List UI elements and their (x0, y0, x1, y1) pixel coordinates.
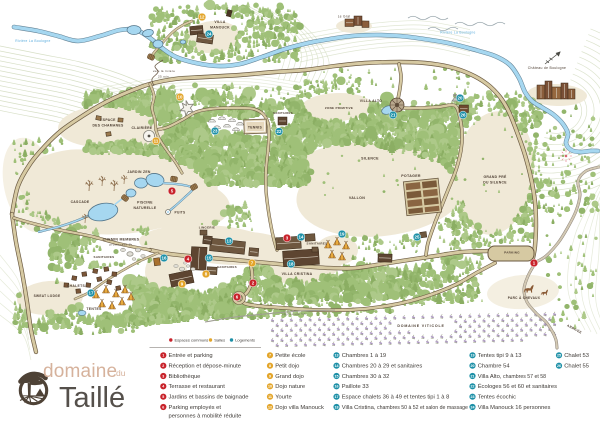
svg-text:DU SILENCE: DU SILENCE (483, 181, 507, 185)
svg-text:PISCINE: PISCINE (137, 201, 153, 205)
svg-text:2: 2 (162, 364, 164, 368)
svg-text:Chambre 54: Chambre 54 (478, 364, 511, 370)
svg-text:Tentes écochic: Tentes écochic (478, 395, 516, 401)
svg-text:Parking employés et: Parking employés et (169, 405, 222, 411)
svg-text:domaine: domaine (43, 361, 117, 382)
svg-text:ZONE PRIMITIVE: ZONE PRIMITIVE (325, 106, 353, 110)
svg-text:3: 3 (162, 374, 164, 378)
svg-text:PARC À CHEVAUX: PARC À CHEVAUX (508, 295, 541, 300)
svg-text:Le Gral: Le Gral (338, 15, 351, 19)
svg-text:9: 9 (269, 374, 271, 378)
svg-text:16: 16 (335, 385, 339, 389)
svg-text:VILLA CRISTINA: VILLA CRISTINA (282, 272, 313, 276)
svg-text:MANOUCK: MANOUCK (210, 26, 230, 30)
svg-text:10: 10 (268, 385, 272, 389)
svg-text:Petit dojo: Petit dojo (275, 364, 299, 370)
svg-text:17: 17 (335, 395, 339, 399)
svg-text:Réception et dépose-minute: Réception et dépose-minute (169, 364, 242, 370)
svg-text:21: 21 (391, 113, 396, 118)
svg-text:25: 25 (557, 354, 561, 358)
svg-text:26: 26 (557, 364, 561, 368)
svg-text:12: 12 (268, 405, 272, 409)
svg-text:VILLA: VILLA (214, 20, 226, 24)
svg-text:16: 16 (162, 256, 167, 261)
svg-text:22: 22 (471, 385, 475, 389)
svg-text:25 min.: 25 min. (158, 75, 170, 79)
svg-text:Grand dojo: Grand dojo (275, 374, 304, 380)
svg-text:GRAND PRÉ: GRAND PRÉ (483, 174, 506, 179)
svg-text:23: 23 (213, 129, 218, 134)
svg-text:Chalet 55: Chalet 55 (564, 364, 589, 370)
svg-text:11: 11 (268, 395, 272, 399)
svg-text:VALLON: VALLON (349, 196, 365, 200)
svg-text:Chambres 30 à 32: Chambres 30 à 32 (342, 374, 390, 380)
svg-text:JARDIN ZEN: JARDIN ZEN (127, 170, 151, 174)
svg-text:Villa Alto, chambres 57 et 58: Villa Alto, chambres 57 et 58 (478, 374, 546, 380)
svg-text:POTAGER: POTAGER (401, 174, 421, 178)
svg-text:13: 13 (335, 354, 339, 358)
svg-text:6: 6 (162, 405, 164, 409)
svg-text:Villa Manouck 16 personnes: Villa Manouck 16 personnes (478, 405, 551, 411)
svg-text:Dojo nature: Dojo nature (275, 384, 305, 390)
svg-text:Salles: Salles (214, 338, 225, 343)
svg-text:18: 18 (289, 262, 294, 267)
svg-text:personnes à mobilité réduite: personnes à mobilité réduite (169, 413, 242, 419)
svg-text:SANITAIRES: SANITAIRES (217, 265, 237, 269)
svg-text:Bibliothèque: Bibliothèque (169, 374, 201, 380)
svg-text:Espace chalets 36 à 49 et tent: Espace chalets 36 à 49 et tentes tipi 1 … (342, 395, 450, 401)
svg-text:19: 19 (471, 354, 475, 358)
svg-text:CLAIRIÈRE: CLAIRIÈRE (132, 125, 153, 130)
svg-text:Taillé: Taillé (59, 382, 125, 414)
svg-text:Espaces communs: Espaces communs (175, 338, 209, 343)
svg-text:Château de Boulogne: Château de Boulogne (528, 66, 567, 70)
svg-text:13: 13 (227, 239, 232, 244)
svg-text:Petite école: Petite école (275, 353, 305, 359)
svg-text:15: 15 (207, 256, 212, 261)
svg-text:Jardins et bassins de baignade: Jardins et bassins de baignade (169, 395, 249, 401)
svg-text:PARKING: PARKING (504, 251, 520, 255)
svg-text:25: 25 (415, 235, 420, 240)
svg-text:vers la rivière: vers la rivière (153, 69, 175, 73)
svg-text:Écologes 56 et 60 et sanitaire: Écologes 56 et 60 et sanitaires (478, 383, 557, 390)
svg-text:18: 18 (335, 405, 339, 409)
svg-text:Chambres 1 à 19: Chambres 1 à 19 (342, 353, 386, 359)
svg-text:12: 12 (200, 15, 205, 20)
svg-text:10: 10 (178, 95, 183, 100)
svg-text:21: 21 (471, 374, 475, 378)
svg-text:SANITAIRES: SANITAIRES (94, 255, 115, 259)
svg-text:CASCADE: CASCADE (71, 200, 90, 204)
svg-text:23: 23 (471, 395, 475, 399)
svg-text:NATURELLE: NATURELLE (134, 206, 157, 210)
svg-text:CHALETS: CHALETS (67, 284, 86, 288)
svg-text:VILLA ALTO: VILLA ALTO (360, 99, 382, 103)
svg-text:17: 17 (89, 291, 94, 296)
svg-text:du: du (116, 368, 126, 378)
svg-text:Yourte: Yourte (275, 395, 292, 401)
svg-text:Rivière La Boulogne: Rivière La Boulogne (15, 39, 50, 43)
svg-text:SANITAIRES: SANITAIRES (307, 242, 328, 246)
svg-text:5: 5 (162, 395, 164, 399)
svg-text:22: 22 (277, 129, 282, 134)
svg-text:20: 20 (458, 96, 463, 101)
svg-text:DOMAINE VITICOLE: DOMAINE VITICOLE (397, 324, 444, 328)
svg-text:LINGERIE: LINGERIE (199, 226, 216, 230)
svg-text:PUITS: PUITS (175, 211, 186, 215)
svg-text:11: 11 (154, 139, 159, 144)
svg-text:15: 15 (335, 374, 339, 378)
svg-text:TENNIS: TENNIS (248, 126, 263, 130)
svg-text:SILENCE: SILENCE (361, 157, 379, 161)
svg-text:8: 8 (269, 364, 271, 368)
svg-text:Logements: Logements (235, 338, 255, 343)
svg-text:DES CHAMANES: DES CHAMANES (92, 124, 124, 128)
svg-text:7: 7 (269, 354, 271, 358)
svg-text:CHEMIN MEMBRES: CHEMIN MEMBRES (103, 238, 140, 242)
svg-text:Terrasse et restaurant: Terrasse et restaurant (169, 384, 226, 390)
svg-text:1: 1 (162, 354, 164, 358)
svg-text:ESPACE: ESPACE (100, 118, 116, 122)
svg-text:4: 4 (162, 385, 164, 389)
svg-text:Rivière La Boulogne: Rivière La Boulogne (440, 31, 475, 35)
svg-text:promenade ½h: promenade ½h (282, 312, 306, 316)
svg-text:20: 20 (471, 364, 475, 368)
svg-text:Entrée et parking: Entrée et parking (169, 353, 213, 359)
svg-text:Chambres 20 à 29 et sanitaires: Chambres 20 à 29 et sanitaires (342, 364, 423, 370)
svg-text:promenade 1h: promenade 1h (110, 243, 133, 247)
svg-text:26: 26 (461, 113, 466, 118)
svg-text:Tentes tipi 9 à 13: Tentes tipi 9 à 13 (478, 353, 522, 359)
svg-text:Chalet 53: Chalet 53 (564, 353, 589, 359)
svg-text:Paillote 33: Paillote 33 (342, 384, 369, 390)
svg-text:19: 19 (340, 232, 345, 237)
svg-text:Villa Cristina, chambres 50 à: Villa Cristina, chambres 50 à 52 et salo… (342, 405, 468, 411)
svg-text:24: 24 (471, 405, 475, 409)
svg-text:SANITAIRES: SANITAIRES (273, 111, 293, 115)
svg-text:14: 14 (335, 364, 339, 368)
svg-text:14: 14 (299, 235, 304, 240)
svg-text:24: 24 (207, 32, 212, 37)
svg-text:SWEAT LODGE: SWEAT LODGE (34, 294, 61, 298)
svg-text:Dojo villa Manouck: Dojo villa Manouck (275, 405, 324, 411)
svg-text:TENTES: TENTES (86, 307, 102, 311)
